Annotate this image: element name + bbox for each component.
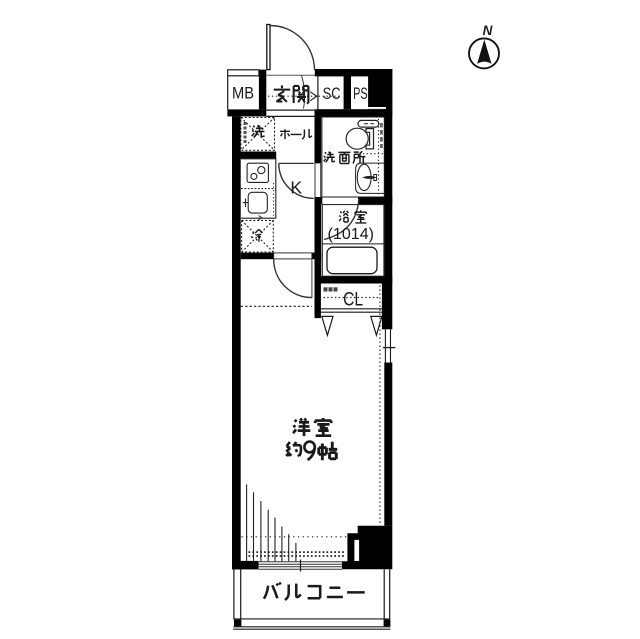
svg-text:(1014): (1014) xyxy=(328,226,375,243)
svg-text:N: N xyxy=(483,23,493,38)
svg-text:SC: SC xyxy=(323,84,341,103)
svg-text:CL: CL xyxy=(343,289,363,311)
svg-text:PS: PS xyxy=(353,84,368,103)
svg-text:MB: MB xyxy=(232,84,254,102)
svg-text:K: K xyxy=(290,178,302,198)
